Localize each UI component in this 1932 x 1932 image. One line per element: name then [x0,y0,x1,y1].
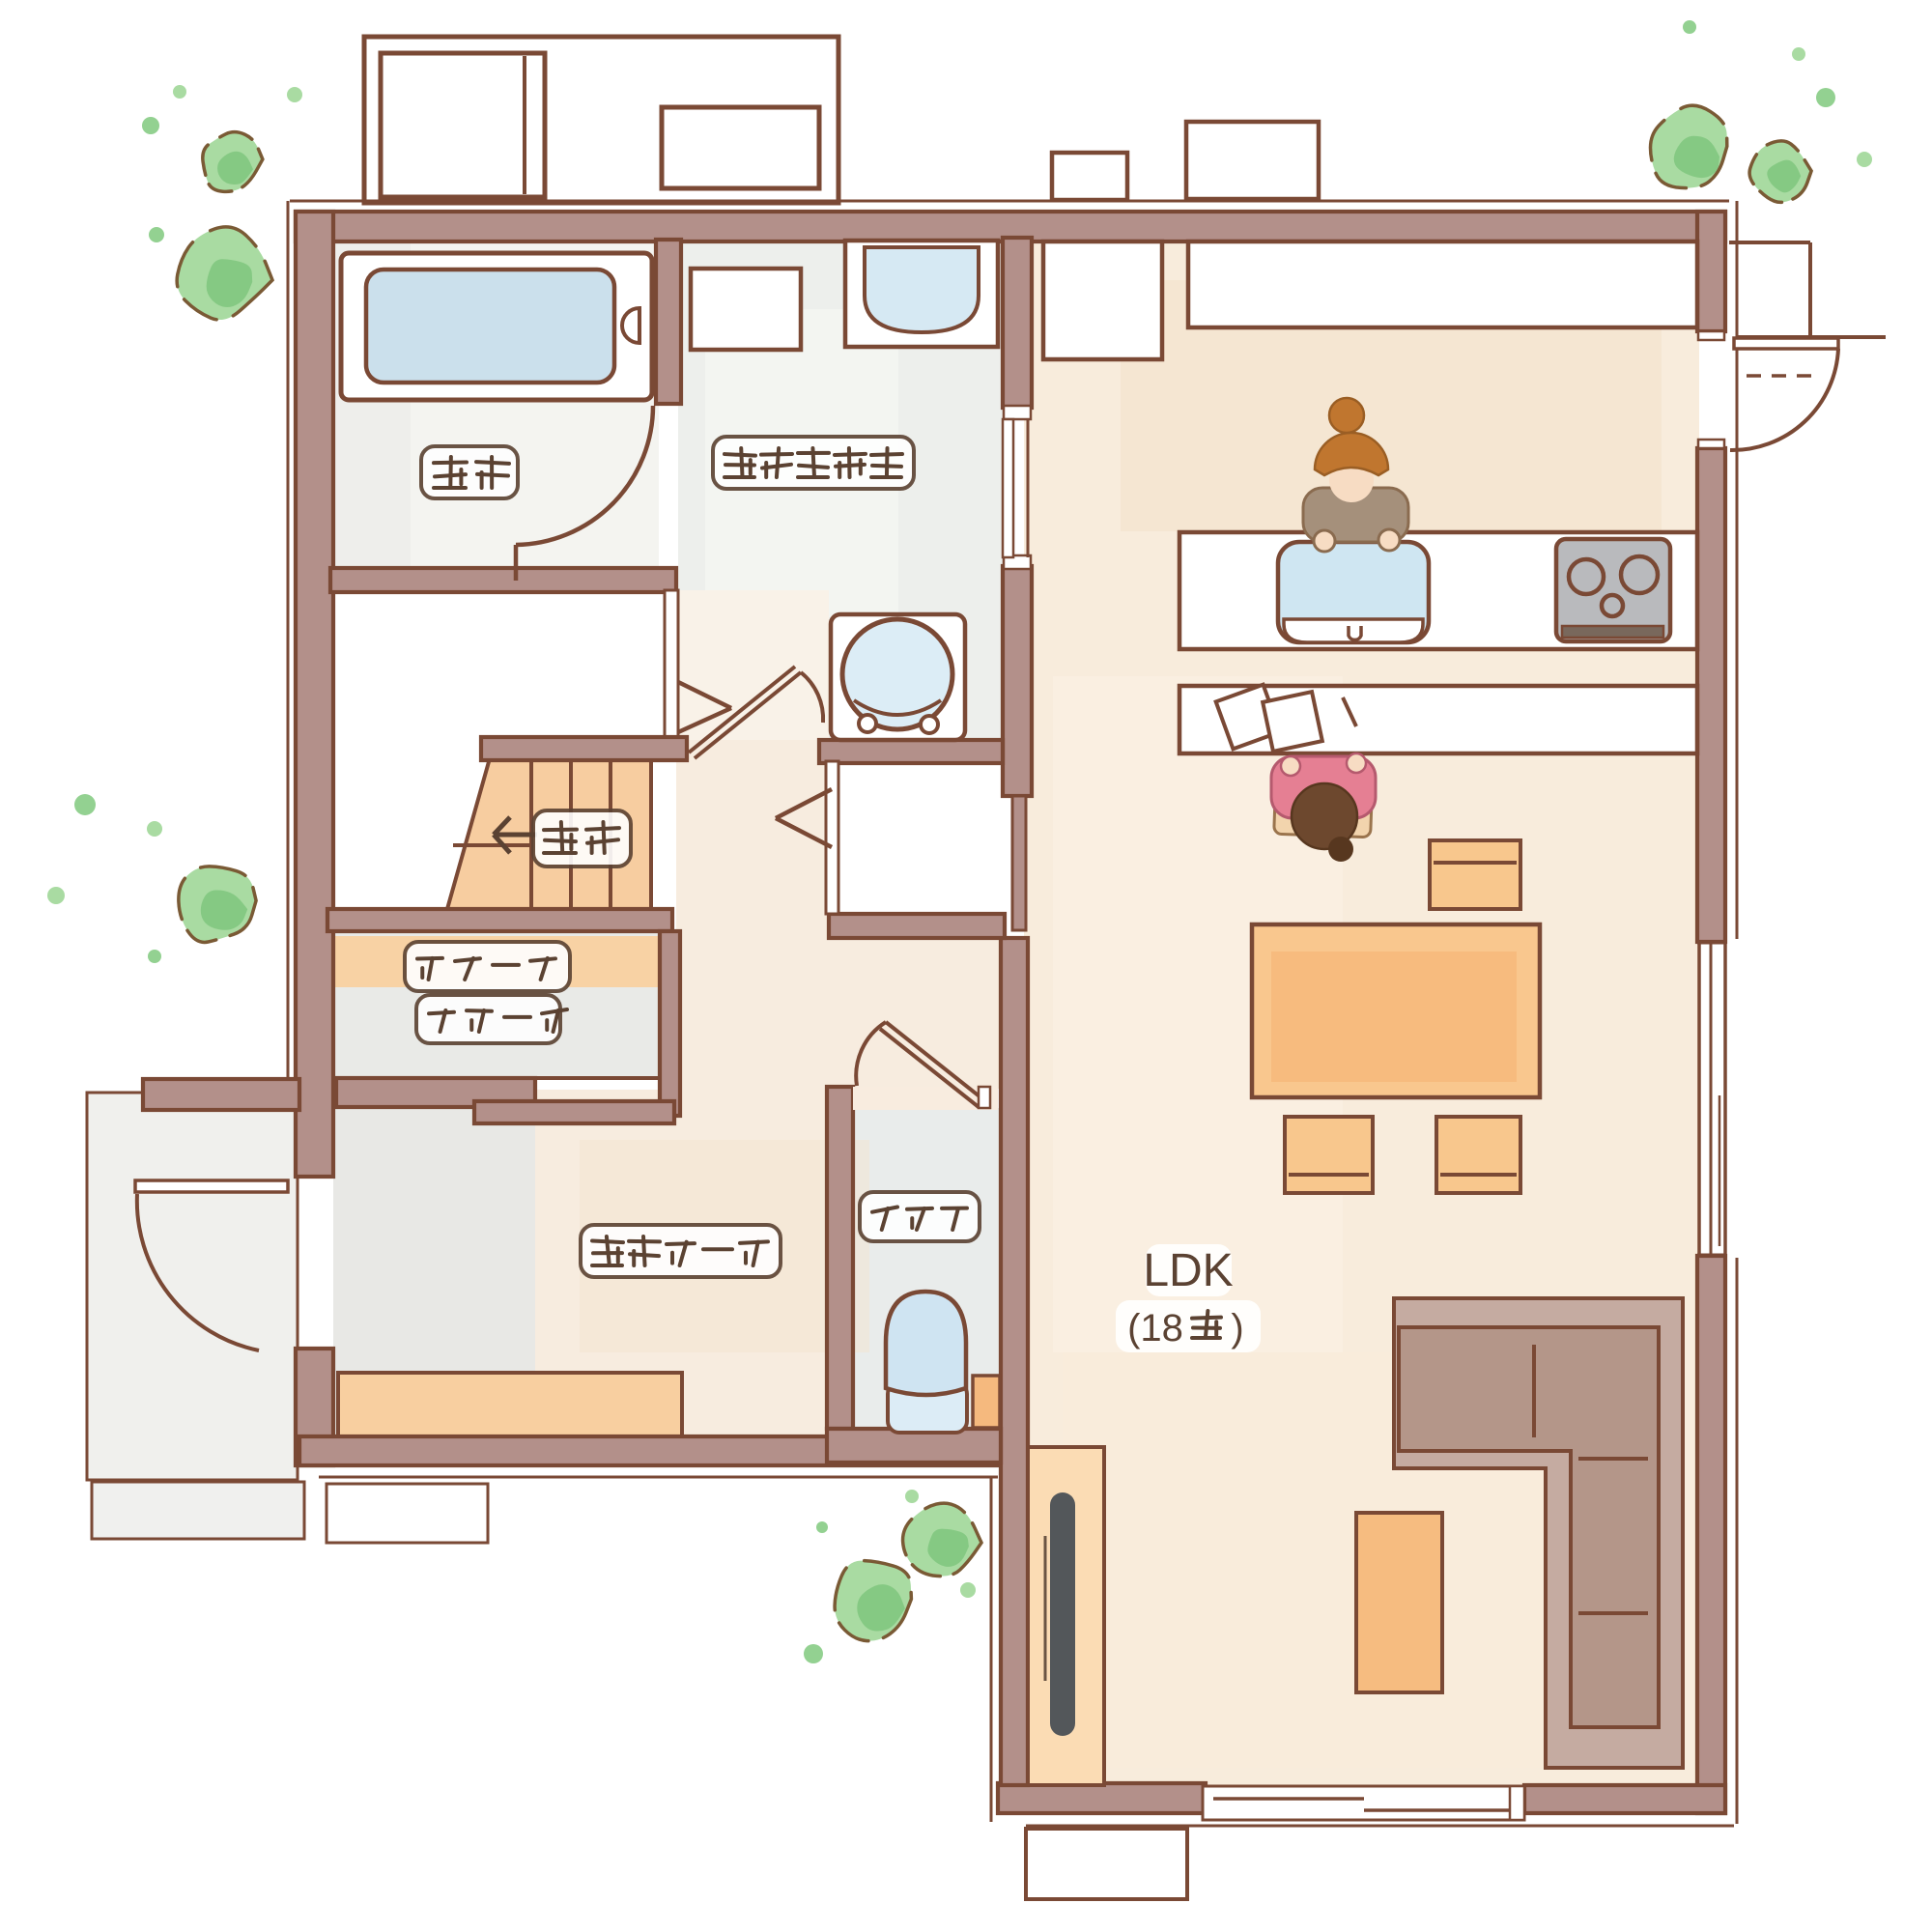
svg-text:): ) [1231,1307,1243,1350]
svg-text:(18: (18 [1127,1307,1183,1350]
svg-text:LDK: LDK [1143,1245,1233,1296]
